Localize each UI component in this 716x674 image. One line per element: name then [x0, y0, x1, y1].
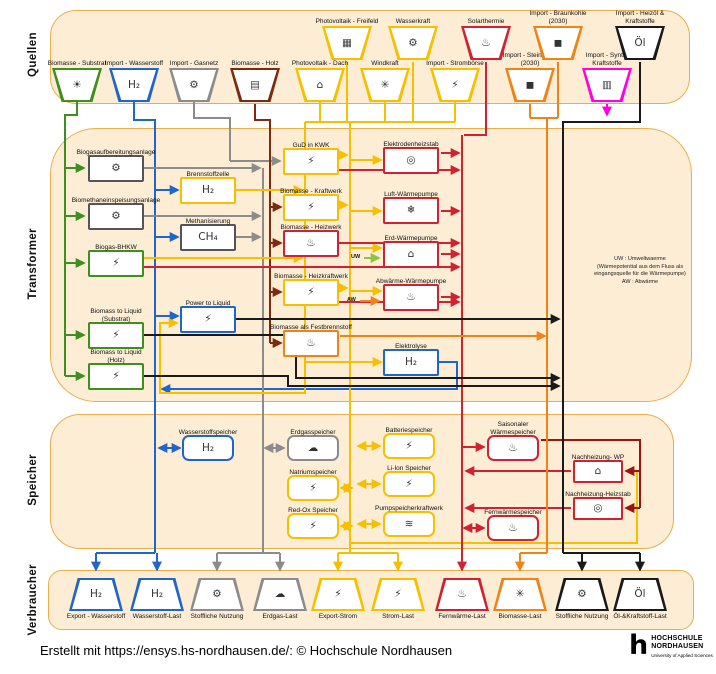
store-wasserstoffspeicher[interactable]: H₂Wasserstoffspeicher: [182, 435, 234, 461]
source-photovoltaik-freifeld[interactable]: ▦Photovoltaik - Freifeld: [322, 26, 372, 60]
load-wasserstoff-last[interactable]: H₂Wasserstoff-Last: [130, 578, 184, 611]
heating-coil-icon: ◎: [575, 499, 621, 518]
wasserstoffspeicher-label: Wasserstoffspeicher: [161, 429, 255, 436]
pellet-bag-icon: ✳: [493, 578, 547, 611]
nachheizung-heizstab-label: Nachheizung-Heizstab: [551, 491, 645, 498]
fuel-cell-icon: H₂: [182, 179, 234, 202]
aw-flow-label: AW: [347, 297, 356, 303]
hochschule-nordhausen-logo: h HOCHSCHULE NORDHAUSEN University of Ap…: [629, 635, 713, 658]
gas-bottles-icon: H₂: [130, 578, 184, 611]
store-batteriespeicher[interactable]: ⚡Batteriespeicher: [383, 433, 435, 459]
transformer-abwaerme-waermepumpe[interactable]: ♨Abwärme-Wärmepumpe: [383, 284, 439, 311]
biomass-to-liquid-substrat-label: Biomass to Liquid(Substrat): [69, 308, 163, 323]
transformer-power-to-liquid[interactable]: ⚡Power to Liquid: [180, 306, 236, 333]
store-li-ion-speicher[interactable]: ⚡Li-Ion Speicher: [383, 471, 435, 497]
biogas-bhkw-label: Biogas-BHKW: [69, 244, 163, 251]
gas-tank-icon: ☁: [289, 437, 337, 459]
luft-waermepumpe-label: Luft-Wärmepumpe: [364, 191, 458, 198]
ch4-cloud-icon: CH₄: [182, 226, 234, 249]
transformer-brennstoffzelle[interactable]: H₂Brennstoffzelle: [180, 177, 236, 204]
battery-icon: ⚡: [289, 477, 337, 499]
transformer-gud-in-kwk[interactable]: ⚡GuD in KWK: [283, 148, 339, 175]
load-export-wasserstoff[interactable]: H₂Export - Wasserstoff: [69, 578, 123, 611]
natriumspeicher-label: Natriumspeicher: [266, 469, 360, 476]
coal-cart-icon: ◼: [505, 68, 555, 102]
source-solarthermie[interactable]: ♨Solarthermie: [461, 26, 511, 60]
fuel-drop-icon: ⚡: [182, 308, 234, 331]
load-strom-last[interactable]: ⚡Strom-Last: [371, 578, 425, 611]
biogasaufbereitungsanlage-label: Biogasaufbereitungsanlage: [69, 149, 163, 156]
boiler-icon: ♨: [285, 232, 337, 255]
transformer-biomass-to-liquid-holz[interactable]: ⚡Biomass to Liquid(Holz): [88, 363, 144, 390]
source-biomasse-holz[interactable]: ▤Biomasse - Holz: [230, 68, 280, 102]
saisonaler-waermespeicher-label: SaisonalerWärmespeicher: [466, 421, 560, 436]
gas-valve-icon: ⚙: [169, 68, 219, 102]
source-import-stromboerse[interactable]: ⚡Import - Strombörse: [430, 68, 480, 102]
transformer-methanisierung[interactable]: CH₄Methanisierung: [180, 224, 236, 251]
legend-note-line: UW : Umweltwaerme: [578, 256, 702, 264]
power-pylon-icon: ⚡: [430, 68, 480, 102]
legend-note: UW : Umweltwaerme (Wärmepotential aus de…: [578, 256, 702, 287]
oil-barrel-icon: Öl: [615, 26, 665, 60]
load-oel-kraftstoff-last[interactable]: ÖlÖl-&Kraftstoff-Last: [613, 578, 667, 611]
transformer-biomasse-heizkraftwerk[interactable]: ⚡Biomasse - Heizkraftwerk: [283, 279, 339, 306]
power-to-liquid-label: Power to Liquid: [161, 300, 255, 307]
transformer-biomass-to-liquid-substrat[interactable]: ⚡Biomass to Liquid(Substrat): [88, 322, 144, 349]
section-label-transformer: Transformer: [27, 228, 39, 300]
brennstoffzelle-label: Brennstoffzelle: [161, 171, 255, 178]
source-photovoltaik-dach[interactable]: ⌂Photovoltaik - Dach: [295, 68, 345, 102]
biomasse-kraftwerk-label: Biomasse - Kraftwerk: [264, 188, 358, 195]
source-import-heizoel-kraftstoffe[interactable]: ÖlImport - Heizöl &Kraftstoffe: [615, 26, 665, 60]
water-wheel-icon: ⚙: [388, 26, 438, 60]
store-natriumspeicher[interactable]: ⚡Natriumspeicher: [287, 475, 339, 501]
h2-molecules-icon: H₂: [109, 68, 159, 102]
bolt-icon: ⚡: [371, 578, 425, 611]
erd-waermepumpe-label: Erd-Wärmepumpe: [364, 235, 458, 242]
store-red-ox-speicher[interactable]: ⚡Red-Ox Speicher: [287, 513, 339, 539]
heat-pump-ground-icon: ⌂: [575, 462, 621, 481]
transformer-luft-waermepumpe[interactable]: ❄Luft-Wärmepumpe: [383, 197, 439, 224]
transformer-elektrodenheizstab[interactable]: ◎Elektrodenheizstab: [383, 147, 439, 174]
store-erdgasspeicher[interactable]: ☁Erdgasspeicher: [287, 435, 339, 461]
truck-icon: H₂: [69, 578, 123, 611]
red-ox-speicher-label: Red-Ox Speicher: [266, 507, 360, 514]
store-fernwaermespeicher[interactable]: ♨Fernwärmespeicher: [487, 515, 539, 541]
logo-line-1: HOCHSCHULE: [651, 635, 713, 643]
hsn-logo-icon: h: [629, 635, 648, 658]
power-plant-icon: ⚡: [285, 150, 337, 173]
logo-subtitle: University of Applied Sciences: [651, 653, 713, 658]
gas-injection-icon: ⚙: [90, 205, 142, 228]
h2-tank-icon: H₂: [184, 437, 232, 459]
power-plant-icon: ⚡: [285, 281, 337, 304]
gas-bottle-icon: ☁: [253, 578, 307, 611]
material-use-icon: ⚙: [190, 578, 244, 611]
transformer-biomasse-heizwerk[interactable]: ♨Biomasse - Heizwerk: [283, 230, 339, 257]
li-ion-speicher-label: Li-Ion Speicher: [362, 465, 456, 472]
biomasse-als-festbrennstoff-label: Biomasse als Festbrennstoff: [264, 324, 358, 331]
wood-logs-icon: ▤: [230, 68, 280, 102]
nachheizung-wp-label: Nachheizung- WP: [551, 454, 645, 461]
methanisierung-label: Methanisierung: [161, 218, 255, 225]
credit-text: Erstellt mit https://ensys.hs-nordhausen…: [40, 643, 452, 658]
batteriespeicher-label: Batteriespeicher: [362, 427, 456, 434]
battery-icon: ⚡: [385, 473, 433, 495]
section-label-quellen: Quellen: [27, 32, 39, 77]
electrolysis-icon: H₂: [385, 351, 437, 374]
transformer-biomasse-kraftwerk[interactable]: ⚡Biomasse - Kraftwerk: [283, 194, 339, 221]
heat-store-icon: ♨: [489, 437, 537, 459]
store-pumpspeicherkraftwerk[interactable]: ≋Pumpspeicherkraftwerk: [383, 511, 435, 537]
transformer-biogasaufbereitungsanlage[interactable]: ⚙Biogasaufbereitungsanlage: [88, 155, 144, 182]
source-import-synth-kraftstoffe[interactable]: ▥Import - Synth.Kraftstoffe: [582, 68, 632, 102]
load-stoffliche-nutzung-gas[interactable]: ⚙Stoffliche Nutzung: [190, 578, 244, 611]
load-biomasse-last[interactable]: ✳Biomasse-Last: [493, 578, 547, 611]
solar-field-icon: ▦: [322, 26, 372, 60]
section-label-speicher: Speicher: [27, 454, 39, 506]
oel-kraftstoff-last-label: Öl-&Kraftstoff-Last: [593, 613, 687, 620]
fuel-drop-icon: ⚡: [90, 324, 142, 347]
fuel-pump-icon: ▥: [582, 68, 632, 102]
heat-pump-ground-icon: ⌂: [385, 243, 437, 266]
heat-pump-waste-icon: ♨: [385, 286, 437, 309]
flame-icon: ♨: [285, 332, 337, 355]
gears-icon: ⚙: [555, 578, 609, 611]
transformer-biomethaneinspeisungsanlage[interactable]: ⚙Biomethaneinspeisungsanlage: [88, 203, 144, 230]
gud-in-kwk-label: GuD in KWK: [264, 142, 358, 149]
biomass-to-liquid-holz-label: Biomass to Liquid(Holz): [69, 349, 163, 364]
dam-icon: ≋: [385, 513, 433, 535]
legend-note-line: eingangsquelle für die Wärmepumpe): [578, 271, 702, 279]
source-biomasse-substrat[interactable]: ☀Biomasse - Substrat: [52, 68, 102, 102]
radiator-icon: ♨: [435, 578, 489, 611]
solar-thermal-icon: ♨: [461, 26, 511, 60]
legend-note-line: AW : Abwärme: [578, 279, 702, 287]
battery-icon: ⚡: [385, 435, 433, 457]
source-wasserkraft[interactable]: ⚙Wasserkraft: [388, 26, 438, 60]
elektrodenheizstab-label: Elektrodenheizstab: [364, 141, 458, 148]
uw-flow-label: UW: [351, 254, 360, 260]
source-import-steinkohle-2030[interactable]: ◼Import - Steinkohle(2030): [505, 68, 555, 102]
elektrolyse-label: Elektrolyse: [364, 343, 458, 350]
import-braunkohle-2030-label: Import - Braunkohle(2030): [511, 10, 605, 25]
bulb-icon: ⚡: [311, 578, 365, 611]
transformer-elektrolyse[interactable]: H₂Elektrolyse: [383, 349, 439, 376]
power-plant-icon: ⚡: [285, 196, 337, 219]
biomasse-heizwerk-label: Biomasse - Heizwerk: [264, 224, 358, 231]
fuel-drop-icon: ⚡: [90, 365, 142, 388]
legend-note-line: (Wärmepotential aus dem Fluss als: [578, 264, 702, 272]
logo-line-2: NORDHAUSEN: [651, 643, 713, 651]
import-heizoel-kraftstoffe-label: Import - Heizöl &Kraftstoffe: [593, 10, 687, 25]
fuel-nozzle-icon: Öl: [613, 578, 667, 611]
biogas-plant-icon: ⚙: [90, 157, 142, 180]
biomethaneinspeisungsanlage-label: Biomethaneinspeisungsanlage: [69, 197, 163, 204]
fernwaermespeicher-label: Fernwärmespeicher: [466, 509, 560, 516]
solar-roof-icon: ⌂: [295, 68, 345, 102]
transformer-biogas-bhkw[interactable]: ⚡Biogas-BHKW: [88, 250, 144, 277]
heating-coil-icon: ◎: [385, 149, 437, 172]
source-import-gasnetz[interactable]: ⚙Import - Gasnetz: [169, 68, 219, 102]
section-label-verbraucher: Verbraucher: [27, 564, 39, 636]
coal-cart-icon: ◼: [533, 26, 583, 60]
abwaerme-waermepumpe-label: Abwärme-Wärmepumpe: [364, 278, 458, 285]
transformer-biomasse-als-festbrennstoff[interactable]: ♨Biomasse als Festbrennstoff: [283, 330, 339, 357]
store-nachheizung-wp[interactable]: ⌂Nachheizung- WP: [573, 460, 623, 483]
store-saisonaler-waermespeicher[interactable]: ♨SaisonalerWärmespeicher: [487, 435, 539, 461]
transformer-erd-waermepumpe[interactable]: ⌂Erd-Wärmepumpe: [383, 241, 439, 268]
load-export-strom[interactable]: ⚡Export-Strom: [311, 578, 365, 611]
source-import-wasserstoff[interactable]: H₂Import - Wasserstoff: [109, 68, 159, 102]
energy-crops-icon: ☀: [52, 68, 102, 102]
erdgasspeicher-label: Erdgasspeicher: [266, 429, 360, 436]
biomasse-heizkraftwerk-label: Biomasse - Heizkraftwerk: [264, 273, 358, 280]
battery-icon: ⚡: [289, 515, 337, 537]
load-stoffliche-nutzung-oel[interactable]: ⚙Stoffliche Nutzung: [555, 578, 609, 611]
load-fernwaerme-last[interactable]: ♨Fernwärme-Last: [435, 578, 489, 611]
store-nachheizung-heizstab[interactable]: ◎Nachheizung-Heizstab: [573, 497, 623, 520]
energy-system-diagram: Quellen Transformer Speicher Verbraucher: [0, 0, 716, 674]
source-windkraft[interactable]: ✳Windkraft: [360, 68, 410, 102]
wind-turbine-icon: ✳: [360, 68, 410, 102]
source-import-braunkohle-2030[interactable]: ◼Import - Braunkohle(2030): [533, 26, 583, 60]
load-erdgas-last[interactable]: ☁Erdgas-Last: [253, 578, 307, 611]
pumpspeicherkraftwerk-label: Pumpspeicherkraftwerk: [362, 505, 456, 512]
chp-engine-icon: ⚡: [90, 252, 142, 275]
heat-pump-air-icon: ❄: [385, 199, 437, 222]
heat-store-icon: ♨: [489, 517, 537, 539]
